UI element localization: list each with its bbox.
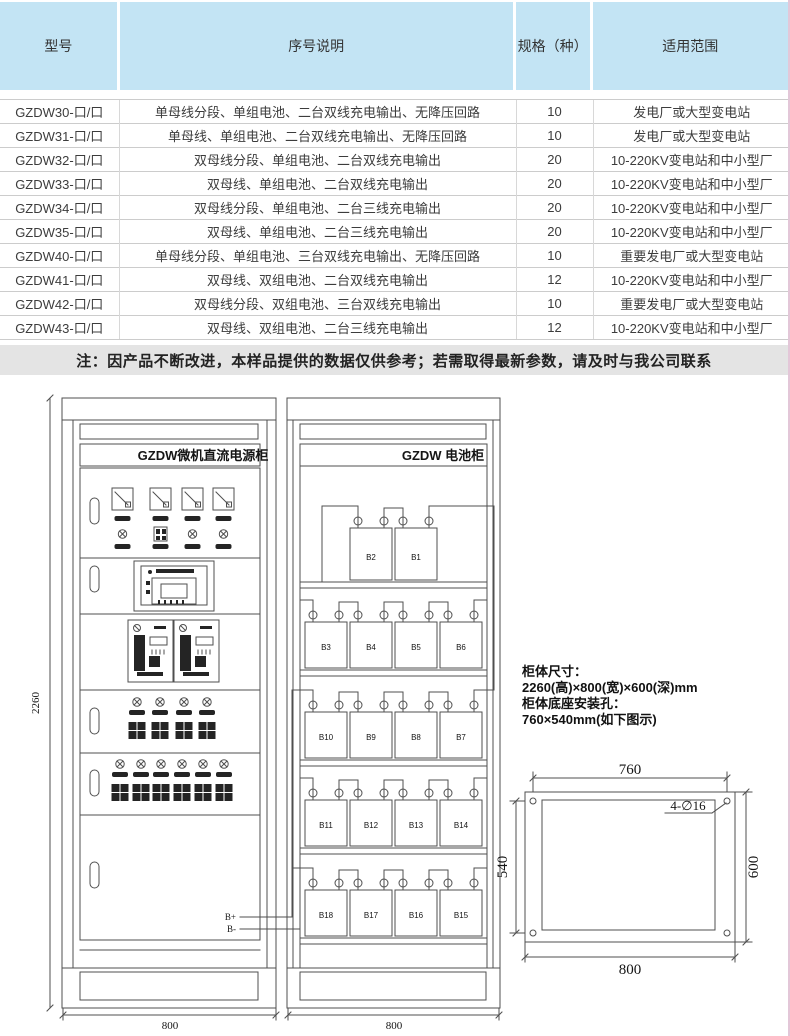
battery: B7 [440,697,482,758]
bottom-vent-grille-icon [80,972,258,1000]
bottom-vent-grille-icon [300,972,486,1000]
meter-icon [112,488,133,521]
battery-jumper-wire [339,780,358,789]
dim-label-800-left: 800 [162,1020,179,1032]
battery-jumper-wire [384,602,403,611]
battery-wire [474,868,487,879]
dim-label-800-base: 800 [619,962,642,978]
battery: B17 [350,875,392,936]
breaker-column-icon [112,760,129,801]
battery-label: B16 [409,911,424,920]
battery-wire [292,868,313,879]
width-dimension: 800 [285,1008,502,1032]
battery-label: B7 [456,733,466,742]
battery: B10 [305,697,347,758]
battery-wire [474,690,494,701]
indicator-lamp-icon [115,530,131,549]
feeder-breaker-panel [129,698,216,739]
mounting-hole-icon [530,798,536,804]
battery-wire [292,690,313,701]
indicator-lamp-icon [216,530,232,549]
width-dimension: 800 [60,1008,279,1032]
indicator-lamp-icon [185,530,201,549]
breaker-column-icon [153,760,170,801]
battery-label: B4 [366,643,376,652]
battery-label: B3 [321,643,331,652]
dim-label-2260: 2260 [30,692,42,715]
battery: B1 [395,513,437,580]
battery: B9 [350,697,392,758]
meter-icon [182,488,203,521]
battery-label: B13 [409,821,424,830]
battery-label: B17 [364,911,379,920]
door-handle-icon [90,498,99,524]
battery-jumper-wire [429,870,448,879]
dim-label-540: 540 [495,856,511,879]
battery: B12 [350,785,392,846]
left-cabinet-title: GZDW微机直流电源柜 [138,448,269,463]
battery-cabinet-drawing: GZDW 电池柜 B2 B1 B3 B4 B [285,398,502,1032]
battery-label: B10 [319,733,334,742]
battery-label: B12 [364,821,379,830]
monitor-lcd-module [134,561,214,611]
battery-jumper-wire [339,602,358,611]
battery: B16 [395,875,437,936]
mounting-hole-icon [530,930,536,936]
battery: B6 [440,607,482,668]
top-vent-grille-icon [300,424,486,439]
meter-icon [213,488,234,521]
battery-jumper-wire [429,602,448,611]
battery-wire [474,778,487,789]
battery-wire [429,506,494,517]
bminus-label: B- [227,924,236,934]
door-handle-icon [90,708,99,734]
breaker-column-icon [195,760,212,801]
battery: B4 [350,607,392,668]
charger-module-icon [174,620,219,682]
battery-jumper-wire [429,692,448,701]
base-mounting-diagram: 760 4-∅16 540 600 800 [495,762,762,978]
battery-label: B6 [456,643,466,652]
breaker-column-icon [199,698,216,739]
battery: B8 [395,697,437,758]
feeder-breaker-panel [112,760,233,801]
switch-block-icon [153,527,169,549]
battery-jumper-wire [339,692,358,701]
battery: B13 [395,785,437,846]
battery-label: B15 [454,911,469,920]
battery-label: B14 [454,821,469,830]
breaker-column-icon [152,698,169,739]
datasheet-page: 型号 序号说明 规格（种） 适用范围 GZDW30-口/口 单母线分段、单组电池… [0,0,790,1036]
battery-label: B1 [411,553,421,562]
battery-jumper-wire [384,692,403,701]
battery-label: B9 [366,733,376,742]
battery-label: B11 [319,821,333,830]
dc-power-cabinet-drawing: GZDW微机直流电源柜 [30,395,300,1032]
bplus-label: B+ [225,912,236,922]
battery-jumper-wire [339,870,358,879]
battery-label: B2 [366,553,376,562]
meter-icon [150,488,171,521]
battery-jumper-wire [384,780,403,789]
holes-callout: 4-∅16 [670,798,706,813]
battery-label: B8 [411,733,421,742]
battery-jumper-wire [384,508,403,517]
breaker-column-icon [133,760,150,801]
mounting-hole-icon [724,798,730,804]
dim-label-760: 760 [619,762,642,778]
battery-label: B18 [319,911,334,920]
mounting-hole-icon [724,930,730,936]
dim-label-600: 600 [746,856,762,879]
technical-drawing: GZDW微机直流电源柜 [0,0,790,1036]
battery: B15 [440,875,482,936]
battery-wire [300,600,313,611]
breaker-column-icon [176,698,193,739]
battery-wire [300,778,313,789]
height-dimension: 2260 [30,395,53,1011]
door-handle-icon [90,770,99,796]
battery: B2 [350,513,392,580]
battery-label: B5 [411,643,421,652]
battery-wire [322,506,358,582]
battery-jumper-wire [384,870,403,879]
battery: B11 [305,785,347,846]
battery: B5 [395,607,437,668]
battery-wire [474,600,487,611]
right-cabinet-title: GZDW 电池柜 [402,448,484,463]
dim-label-800-right: 800 [386,1020,403,1032]
top-vent-grille-icon [80,424,258,439]
breaker-column-icon [216,760,233,801]
door-handle-icon [90,566,99,592]
battery-jumper-wire [429,780,448,789]
battery: B14 [440,785,482,846]
breaker-column-icon [129,698,146,739]
battery: B3 [305,607,347,668]
battery: B18 [305,875,347,936]
charger-module-icon [128,620,173,682]
analog-meter-panel [112,488,234,549]
breaker-column-icon [174,760,191,801]
door-handle-icon [90,862,99,888]
